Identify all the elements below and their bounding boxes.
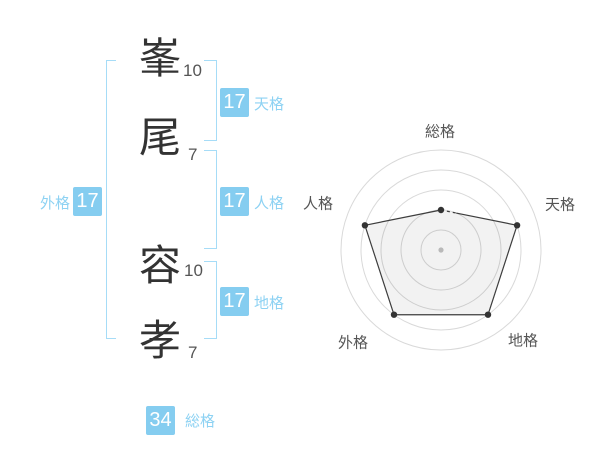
- radar-data-point: [514, 222, 520, 228]
- radar-axis-label: 総格: [425, 124, 455, 141]
- seimei-handan-panel: 峯 尾 容 孝 10 7 10 7 17 天格 17 人格 17 地格 外格 1…: [0, 0, 600, 470]
- radar-center-dot: [438, 247, 443, 252]
- radar-data-point: [391, 312, 397, 318]
- radar-data-point: [438, 207, 444, 213]
- radar-axis-label: 天格: [545, 197, 575, 214]
- radar-data-area: [365, 210, 517, 315]
- radar-data-point: [485, 312, 491, 318]
- radar-chart: 総格天格地格外格人格: [0, 0, 600, 470]
- radar-axis-label: 外格: [338, 335, 368, 352]
- radar-axis-label: 地格: [508, 333, 538, 350]
- radar-data-point: [362, 222, 368, 228]
- radar-axis-label: 人格: [303, 196, 333, 213]
